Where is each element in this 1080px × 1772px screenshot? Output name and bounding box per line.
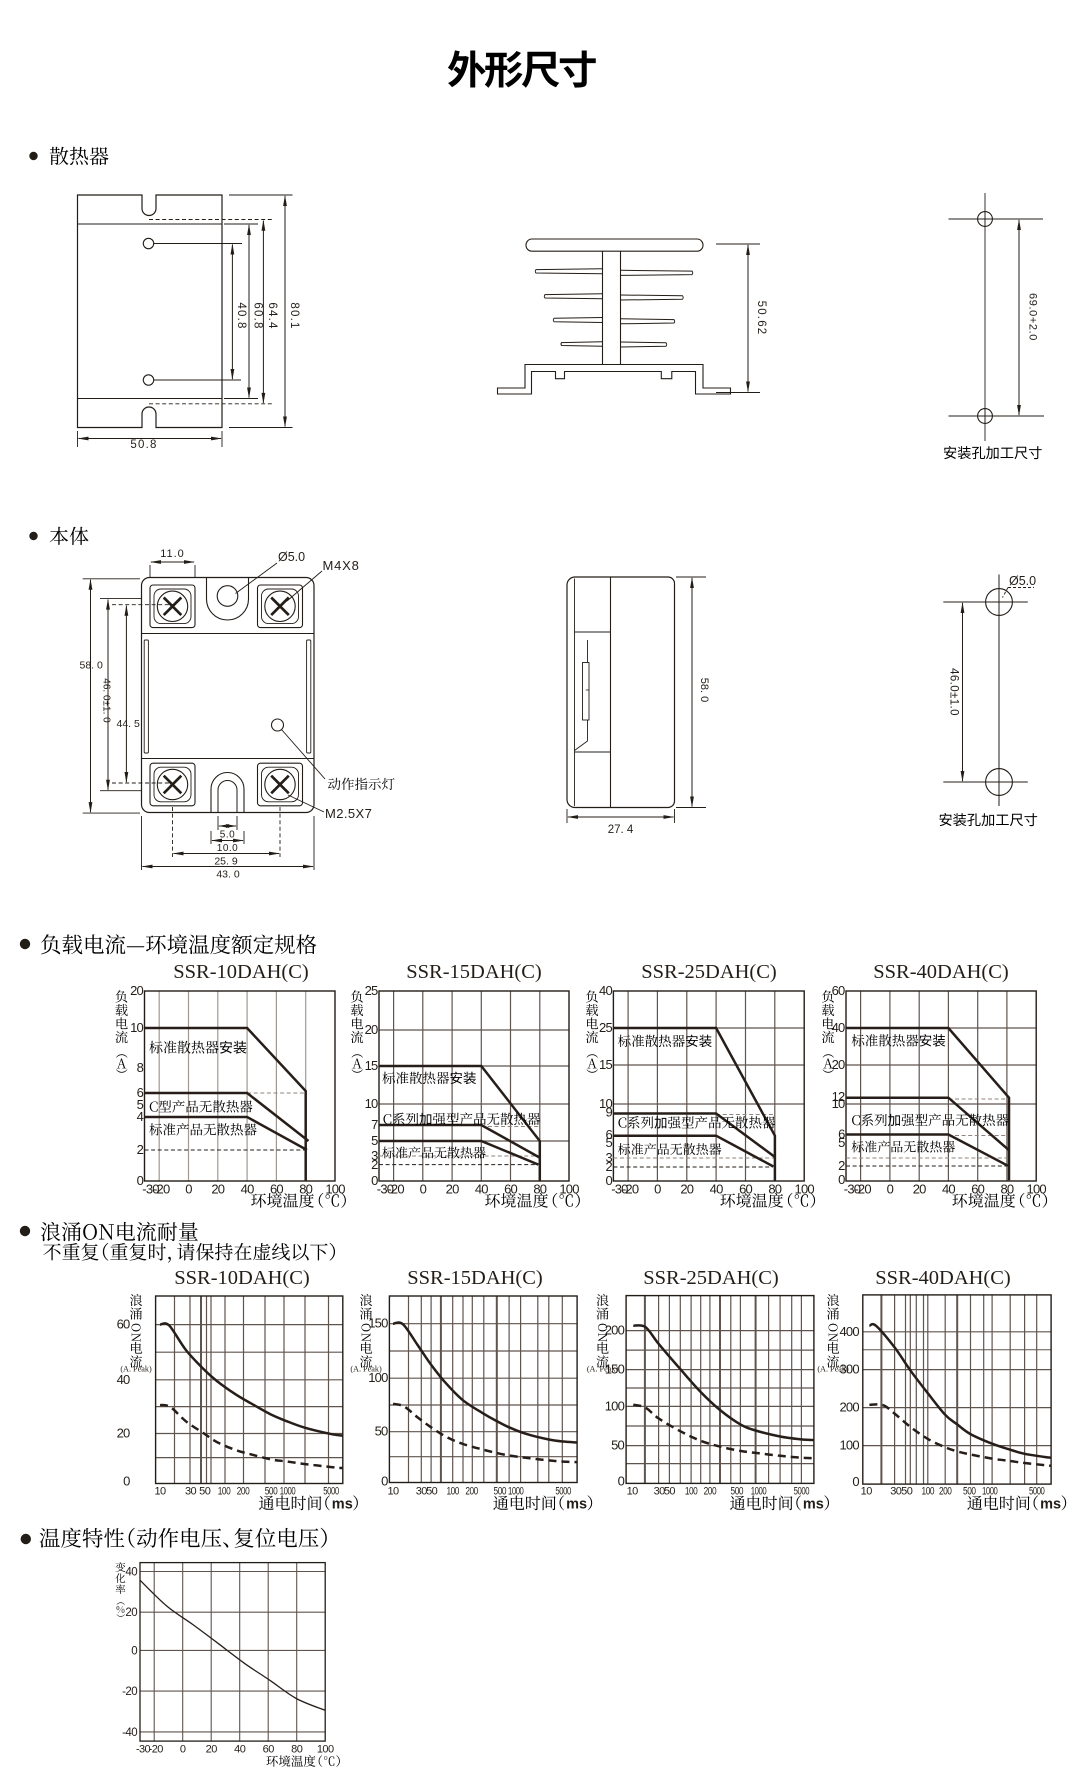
- svg-text:15: 15: [365, 1058, 378, 1073]
- svg-text:500: 500: [963, 1486, 976, 1498]
- svg-text:25: 25: [599, 1020, 612, 1035]
- svg-text:10: 10: [627, 1486, 639, 1498]
- svg-text:50: 50: [611, 1438, 624, 1453]
- svg-text:100: 100: [922, 1486, 935, 1498]
- svg-text:2: 2: [838, 1158, 845, 1173]
- svg-text:0: 0: [618, 1474, 625, 1489]
- svg-text:200: 200: [605, 1323, 625, 1338]
- svg-text:0: 0: [131, 1645, 137, 1657]
- svg-text:(A. Peak): (A. Peak): [817, 1365, 849, 1374]
- svg-text:60: 60: [832, 983, 845, 998]
- svg-text:50: 50: [901, 1486, 913, 1498]
- svg-text:40: 40: [599, 983, 612, 998]
- svg-text:60: 60: [263, 1744, 275, 1756]
- svg-text:5.0: 5.0: [220, 830, 235, 841]
- svg-text:100: 100: [685, 1486, 698, 1498]
- svg-text:40: 40: [942, 1182, 955, 1197]
- svg-text:46. 0±1. 0: 46. 0±1. 0: [101, 678, 112, 723]
- svg-text:ms: ms: [566, 1497, 587, 1513]
- svg-text:SSR-15DAH(C): SSR-15DAH(C): [406, 961, 542, 983]
- svg-text:(A. Peak): (A. Peak): [350, 1365, 382, 1374]
- svg-text:10.0: 10.0: [217, 843, 238, 854]
- svg-text:80: 80: [768, 1182, 781, 1197]
- svg-text:20: 20: [130, 983, 143, 998]
- svg-text:0: 0: [185, 1182, 192, 1197]
- svg-text:58. 0: 58. 0: [698, 678, 710, 702]
- svg-text:2: 2: [371, 1157, 378, 1172]
- svg-text:SSR-10DAH(C): SSR-10DAH(C): [174, 1267, 310, 1289]
- svg-text:-20: -20: [622, 1182, 639, 1197]
- svg-text:25: 25: [365, 983, 378, 998]
- svg-text:(A. Peak): (A. Peak): [587, 1365, 619, 1374]
- svg-text:27. 4: 27. 4: [608, 824, 634, 836]
- svg-text:50: 50: [199, 1486, 211, 1498]
- svg-text:SSR-25DAH(C): SSR-25DAH(C): [643, 1267, 779, 1289]
- svg-text:-20: -20: [854, 1182, 871, 1197]
- svg-text:30: 30: [185, 1486, 197, 1498]
- svg-text:0: 0: [852, 1474, 859, 1489]
- svg-text:100: 100: [795, 1182, 815, 1197]
- svg-text:10: 10: [387, 1486, 399, 1498]
- svg-text:500: 500: [494, 1486, 507, 1498]
- svg-text:ms: ms: [332, 1497, 353, 1513]
- svg-text:5: 5: [838, 1135, 845, 1150]
- svg-text:100: 100: [840, 1438, 860, 1453]
- svg-text:40: 40: [117, 1372, 130, 1387]
- svg-text:60.8: 60.8: [252, 302, 264, 329]
- svg-text:200: 200: [465, 1486, 478, 1498]
- svg-text:8: 8: [137, 1060, 144, 1075]
- svg-text:500: 500: [265, 1486, 278, 1498]
- svg-text:100: 100: [446, 1486, 459, 1498]
- svg-text:100: 100: [218, 1486, 231, 1498]
- svg-text:-40: -40: [122, 1727, 137, 1739]
- svg-text:M4X8: M4X8: [323, 558, 360, 573]
- svg-text:30: 30: [890, 1486, 902, 1498]
- svg-text:10: 10: [130, 1020, 143, 1035]
- svg-text:20: 20: [913, 1182, 926, 1197]
- svg-text:SSR-40DAH(C): SSR-40DAH(C): [875, 1267, 1011, 1289]
- svg-text:M2.5X7: M2.5X7: [325, 806, 372, 821]
- svg-text:40: 40: [241, 1182, 254, 1197]
- svg-text:100: 100: [317, 1744, 334, 1756]
- svg-text:100: 100: [559, 1182, 579, 1197]
- svg-text:20: 20: [446, 1182, 459, 1197]
- svg-text:40: 40: [234, 1744, 246, 1756]
- svg-text:40: 40: [475, 1182, 488, 1197]
- svg-text:44. 5: 44. 5: [117, 718, 141, 730]
- svg-text:20: 20: [211, 1182, 224, 1197]
- svg-text:2: 2: [137, 1142, 144, 1157]
- svg-text:-20: -20: [387, 1182, 404, 1197]
- svg-text:40: 40: [125, 1567, 137, 1579]
- svg-text:10: 10: [154, 1486, 166, 1498]
- svg-text:100: 100: [325, 1182, 345, 1197]
- svg-text:60: 60: [117, 1317, 130, 1332]
- svg-text:SSR-25DAH(C): SSR-25DAH(C): [641, 961, 777, 983]
- svg-text:20: 20: [117, 1426, 130, 1441]
- svg-text:50.8: 50.8: [130, 439, 157, 451]
- svg-text:(A. Peak): (A. Peak): [120, 1365, 152, 1374]
- svg-text:69.0+2.0: 69.0+2.0: [1027, 293, 1039, 341]
- svg-text:5: 5: [605, 1135, 612, 1150]
- svg-text:2: 2: [605, 1159, 612, 1174]
- svg-text:-20: -20: [122, 1686, 137, 1698]
- svg-text:ms: ms: [1040, 1497, 1061, 1513]
- svg-text:50: 50: [426, 1486, 438, 1498]
- svg-text:200: 200: [840, 1400, 860, 1415]
- svg-text:ms: ms: [803, 1497, 824, 1513]
- svg-text:200: 200: [237, 1486, 250, 1498]
- svg-text:SSR-10DAH(C): SSR-10DAH(C): [173, 961, 309, 983]
- svg-text:5: 5: [371, 1133, 378, 1148]
- svg-text:80: 80: [1000, 1182, 1013, 1197]
- svg-text:Ø5.0: Ø5.0: [1009, 574, 1036, 588]
- svg-text:50: 50: [664, 1486, 676, 1498]
- svg-text:200: 200: [939, 1486, 952, 1498]
- svg-text:64.4: 64.4: [266, 302, 278, 329]
- svg-text:58. 0: 58. 0: [80, 660, 104, 672]
- svg-text:-20: -20: [153, 1182, 170, 1197]
- svg-text:0: 0: [887, 1182, 894, 1197]
- svg-text:100: 100: [605, 1398, 625, 1413]
- svg-text:80: 80: [299, 1182, 312, 1197]
- svg-text:20: 20: [125, 1607, 137, 1619]
- svg-text:4: 4: [137, 1109, 144, 1124]
- svg-text:SSR-40DAH(C): SSR-40DAH(C): [873, 961, 1009, 983]
- svg-text:10: 10: [365, 1096, 378, 1111]
- svg-text:-20: -20: [149, 1744, 164, 1756]
- svg-text:10: 10: [832, 1096, 845, 1111]
- svg-text:40: 40: [710, 1182, 723, 1197]
- svg-text:15: 15: [599, 1057, 612, 1072]
- svg-text:7: 7: [371, 1117, 378, 1132]
- svg-text:46.0±1.0: 46.0±1.0: [948, 668, 960, 716]
- svg-text:0: 0: [180, 1744, 186, 1756]
- svg-text:200: 200: [704, 1486, 717, 1498]
- svg-text:25. 9: 25. 9: [214, 856, 238, 868]
- svg-text:20: 20: [680, 1182, 693, 1197]
- svg-text:0: 0: [420, 1182, 427, 1197]
- svg-text:100: 100: [1027, 1182, 1047, 1197]
- svg-text:80: 80: [533, 1182, 546, 1197]
- svg-text:20: 20: [206, 1744, 218, 1756]
- svg-text:9: 9: [605, 1105, 612, 1120]
- svg-text:20: 20: [365, 1022, 378, 1037]
- svg-text:Ø5.0: Ø5.0: [278, 550, 305, 564]
- svg-text:50.62: 50.62: [755, 301, 767, 336]
- svg-text:50: 50: [375, 1424, 388, 1439]
- svg-text:400: 400: [840, 1324, 860, 1339]
- svg-text:80.1: 80.1: [288, 302, 300, 329]
- svg-text:SSR-15DAH(C): SSR-15DAH(C): [407, 1267, 543, 1289]
- svg-text:80: 80: [291, 1744, 303, 1756]
- svg-text:500: 500: [731, 1486, 744, 1498]
- svg-text:40.8: 40.8: [235, 302, 247, 329]
- svg-text:43. 0: 43. 0: [216, 869, 240, 881]
- svg-text:0: 0: [654, 1182, 661, 1197]
- svg-text:10: 10: [861, 1486, 873, 1498]
- svg-text:11.0: 11.0: [160, 548, 185, 560]
- svg-text:0: 0: [123, 1474, 130, 1489]
